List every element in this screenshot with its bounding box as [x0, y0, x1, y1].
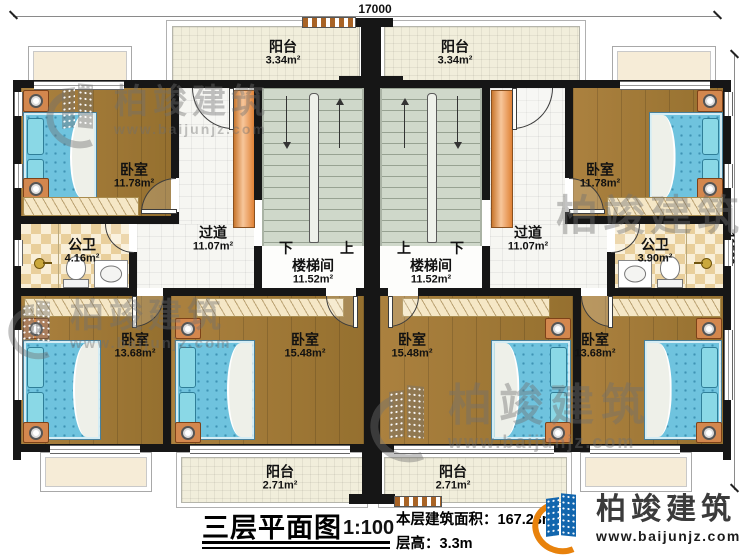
room-label-balcony-bottom-right: 阳台2.71m² — [436, 464, 471, 491]
title-underline — [202, 541, 390, 549]
wall — [163, 288, 326, 296]
wardrobe — [24, 298, 136, 317]
wall — [723, 80, 731, 460]
bed-sheet — [73, 343, 98, 437]
shower-partition — [686, 224, 687, 288]
nightstand — [697, 90, 723, 112]
brand-logo-icon — [532, 492, 586, 546]
nightstand — [545, 318, 571, 339]
wall — [607, 252, 615, 296]
room-label-bedroom-bottom-far-right: 卧室13.68m² — [575, 332, 616, 359]
stair-label-up: 上 — [340, 238, 354, 258]
room-label-corridor-right: 过道11.07m² — [508, 225, 548, 252]
door-leaf — [141, 209, 177, 214]
brand-name: 柏竣建筑 — [596, 495, 741, 525]
plan-scale: 1:100 — [343, 517, 394, 540]
room-label-bedroom-top-right: 卧室11.78m² — [580, 162, 620, 189]
balcony-top-right-floor — [384, 26, 580, 82]
room-label-stairwell-left: 楼梯间11.52m² — [292, 258, 334, 285]
window — [14, 330, 23, 400]
dimension-tick — [9, 10, 18, 19]
stair-arrow-down — [283, 142, 291, 153]
wardrobe — [607, 197, 723, 216]
floorplan-canvas: 17000 11500 — [0, 0, 750, 557]
wall — [482, 246, 490, 296]
wall — [13, 288, 133, 296]
room-label-balcony-top-left: 阳台3.34m² — [266, 39, 301, 66]
window — [620, 81, 710, 90]
bed-sheet — [647, 343, 672, 437]
floor-height-line: 层高：3.3m — [396, 532, 473, 553]
bay-window-bottom-right — [580, 452, 692, 492]
window — [50, 445, 140, 454]
nightstand — [545, 422, 571, 443]
stair-label-down: 下 — [279, 238, 293, 258]
balcony-railing-hatch — [302, 17, 356, 28]
wall — [611, 288, 731, 296]
window — [14, 92, 23, 116]
wall — [13, 80, 21, 460]
room-label-balcony-top-right: 阳台3.34m² — [438, 39, 473, 66]
stair-arrow-up — [401, 94, 409, 105]
window — [724, 92, 733, 116]
bed-sheet — [652, 115, 676, 199]
door-leaf — [353, 296, 358, 328]
stair-direction-line — [286, 96, 287, 144]
door-leaf — [132, 296, 137, 328]
room-label-bedroom-bottom-far-left: 卧室13.68m² — [115, 332, 156, 359]
door-leaf — [608, 296, 613, 328]
bay-window-bottom-left — [40, 452, 152, 492]
plan-title: 三层平面图 — [202, 506, 342, 545]
nightstand — [175, 422, 201, 443]
window — [724, 164, 733, 188]
bed-sheet — [227, 343, 252, 437]
stair-direction-line — [339, 100, 340, 148]
dimension-line-top — [13, 16, 718, 17]
balcony-slider-window — [394, 445, 554, 454]
bed-sheet — [70, 115, 94, 199]
brand-logo: 柏竣建筑www.baijunjz.com — [532, 492, 741, 546]
bed-sheet — [494, 343, 519, 437]
brand-url: www.baijunjz.com — [596, 529, 741, 543]
room-label-bedroom-top-left: 卧室11.78m² — [114, 162, 154, 189]
wardrobe — [402, 298, 550, 317]
room-label-bedroom-bottom-mid-left: 卧室15.48m² — [285, 332, 326, 359]
wall — [418, 288, 581, 296]
room-label-balcony-bottom-left: 阳台2.71m² — [263, 464, 298, 491]
wardrobe — [196, 298, 344, 317]
stair-direction-line — [457, 96, 458, 144]
stair-direction-line — [404, 100, 405, 148]
stair-label-up: 上 — [397, 238, 411, 258]
pillow — [702, 118, 719, 155]
shower-head-icon — [701, 258, 712, 269]
wall — [129, 252, 137, 296]
pillow — [27, 118, 44, 155]
door-leaf — [229, 88, 234, 130]
window — [724, 330, 733, 400]
window — [590, 445, 680, 454]
door-leaf — [388, 296, 393, 328]
door-leaf — [569, 209, 605, 214]
nightstand — [175, 318, 201, 339]
stair-rail — [427, 93, 437, 243]
nightstand — [696, 318, 722, 339]
toilet-tank — [657, 279, 683, 288]
balcony-slider-window — [190, 445, 350, 454]
window — [724, 240, 733, 266]
wall — [573, 288, 581, 452]
wall — [254, 246, 262, 296]
window — [14, 164, 23, 188]
room-label-bathroom-left: 公卫4.16m² — [65, 237, 100, 264]
wall — [254, 80, 262, 200]
stair-arrow-down — [454, 142, 462, 153]
wall — [171, 80, 179, 178]
nightstand — [23, 422, 49, 443]
corridor-right-feature-wall — [491, 90, 513, 228]
party-wall-base — [349, 494, 395, 504]
wall — [565, 80, 573, 178]
stair-arrow-up — [336, 94, 344, 105]
dimension-top-value: 17000 — [352, 2, 398, 16]
pillow — [27, 347, 44, 388]
stair-rail — [309, 93, 319, 243]
window — [34, 81, 124, 90]
corridor-left-feature-wall — [233, 90, 255, 228]
wall — [163, 288, 171, 452]
toilet-tank — [63, 279, 89, 288]
window — [14, 240, 23, 266]
room-label-bathroom-right: 公卫3.90m² — [638, 237, 673, 264]
nightstand — [696, 422, 722, 443]
dimension-tick — [713, 10, 722, 19]
room-label-corridor-left: 过道11.07m² — [193, 225, 233, 252]
party-wall — [364, 80, 380, 460]
nightstand — [23, 318, 49, 339]
wall — [565, 216, 731, 224]
wardrobe — [23, 197, 139, 216]
dimension-line-right — [734, 55, 735, 490]
pillow — [701, 347, 718, 388]
room-label-bedroom-bottom-mid-right: 卧室15.48m² — [392, 332, 433, 359]
shower-partition — [58, 224, 59, 288]
stair-label-down: 下 — [450, 238, 464, 258]
pillow — [550, 347, 567, 388]
wall — [13, 216, 179, 224]
wardrobe — [609, 298, 721, 317]
room-label-stairwell-right: 楼梯间11.52m² — [410, 258, 452, 285]
nightstand — [23, 90, 49, 112]
pillow — [179, 347, 196, 388]
shower-head-icon — [34, 258, 45, 269]
wall — [482, 80, 490, 200]
balcony-railing-hatch — [394, 496, 442, 507]
door-leaf — [512, 88, 517, 130]
